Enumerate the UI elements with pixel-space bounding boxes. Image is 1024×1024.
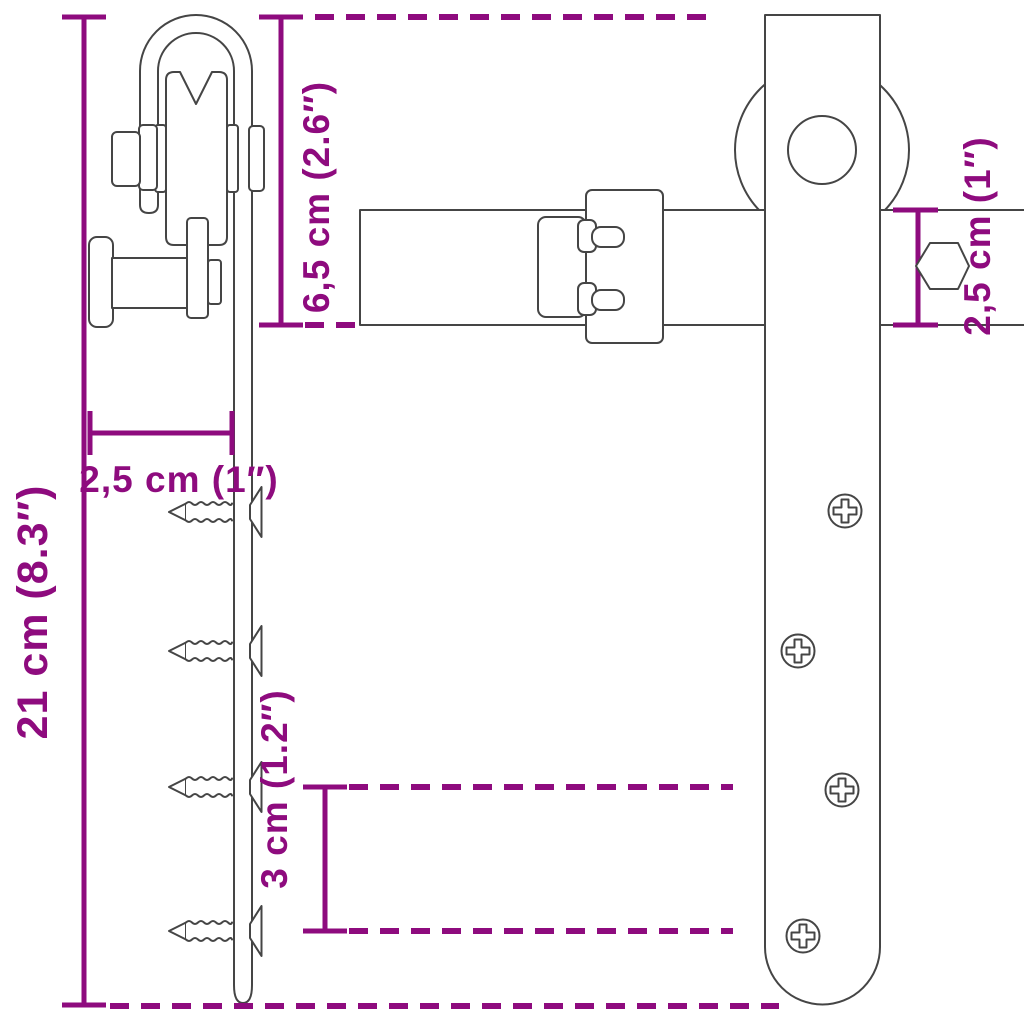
phillips-screw-2 [782, 635, 815, 668]
axle-washer-left [139, 125, 157, 190]
phillips-screw-3 [826, 774, 859, 807]
door-bolt-knob [89, 237, 113, 327]
front-view [360, 15, 1024, 1004]
axle-hole [788, 116, 856, 184]
wheel-rim-right [227, 125, 238, 192]
door-bolt-shaft [112, 258, 188, 308]
phillips-screw-1 [829, 495, 862, 528]
dimension-drawing: 21 cm (8.3″) 6,5 cm (2.6″) 2,5 cm (1″) 3… [0, 0, 1024, 1024]
diagram-canvas: 21 cm (8.3″) 6,5 cm (2.6″) 2,5 cm (1″) 3… [0, 0, 1024, 1024]
dim-hanger-height: 6,5 cm (2.6″) [259, 17, 337, 325]
label-hole-spacing: 3 cm (1.2″) [254, 689, 295, 888]
label-offset-width: 2,5 cm (1″) [79, 459, 278, 500]
phillips-screw-4 [787, 920, 820, 953]
axle-bolt-head [112, 132, 140, 186]
door-bolt-step [208, 260, 221, 304]
door-bolt-plate [187, 218, 208, 318]
dim-hole-spacing: 3 cm (1.2″) [254, 689, 347, 931]
dim-overall-height: 21 cm (8.3″) [9, 17, 106, 1005]
side-view [89, 15, 264, 1003]
rail-bracket-body [586, 190, 663, 343]
label-overall-height: 21 cm (8.3″) [9, 485, 57, 740]
axle-washer-right [249, 126, 264, 191]
label-rail-height: 2,5 cm (1″) [957, 136, 998, 335]
label-hanger-height: 6,5 cm (2.6″) [296, 81, 337, 313]
